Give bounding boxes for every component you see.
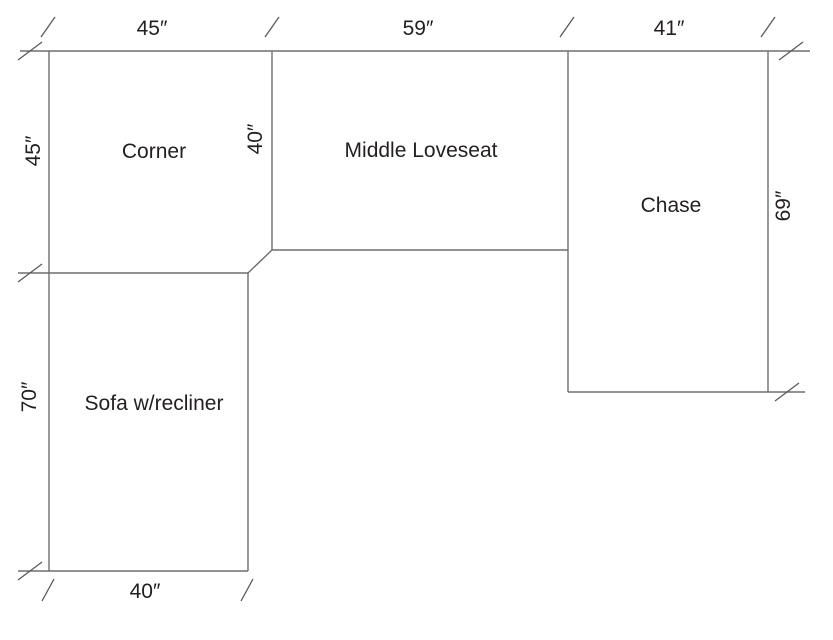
dim-loveseat-depth-middle: 40″ [244,123,267,154]
dimension-ticks [18,17,803,601]
dim-sofa-width-bottom: 40″ [130,580,161,603]
dim-corner-depth-left: 45″ [22,135,45,166]
dim-chase-length-right: 69″ [772,190,795,221]
piece-labels: Corner Middle Loveseat Chase Sofa w/recl… [85,139,702,415]
tick-mark [41,17,55,37]
sofa-recliner-label: Sofa w/recliner [85,392,224,415]
diagram-svg: Corner Middle Loveseat Chase Sofa w/recl… [0,0,833,640]
corner-diagonal-edge-line [248,250,272,273]
tick-mark [241,579,253,601]
tick-mark [761,17,775,37]
chase-label: Chase [641,194,702,217]
dim-sofa-length-left: 70″ [18,381,41,412]
dim-chase-width-top: 41″ [654,17,685,40]
tick-mark [42,579,54,601]
sectional-layout-diagram: Corner Middle Loveseat Chase Sofa w/recl… [0,0,833,640]
tick-mark [265,17,279,37]
tick-mark [560,17,574,37]
dim-corner-width-top: 45″ [137,17,168,40]
corner-label: Corner [122,140,186,163]
dimension-labels: 45″ 59″ 41″ 45″ 70″ 40″ 69″ 40″ [18,17,795,603]
middle-loveseat-label: Middle Loveseat [345,139,498,162]
furniture-outlines [18,51,810,571]
dim-loveseat-width-top: 59″ [403,17,434,40]
